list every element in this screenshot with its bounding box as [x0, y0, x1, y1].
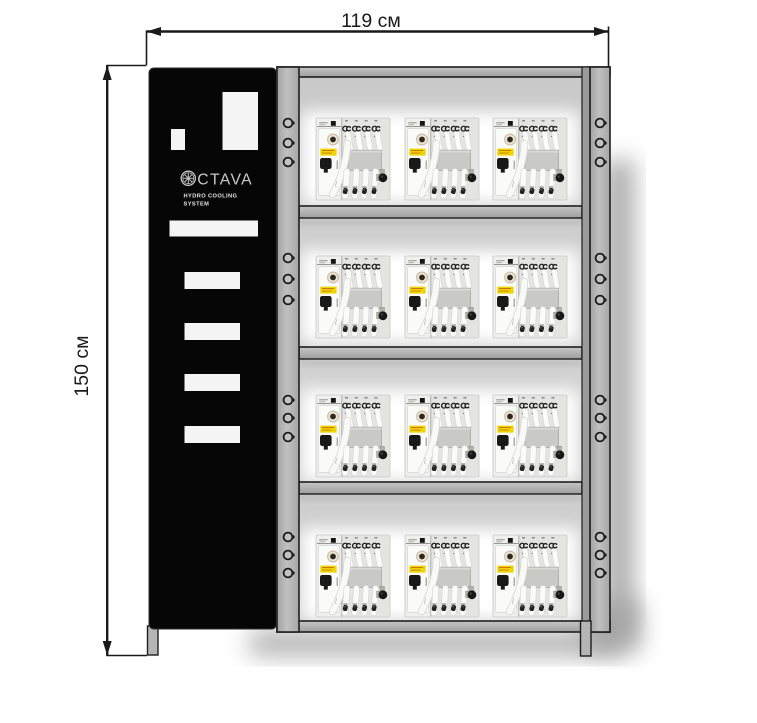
svg-text:119 см: 119 см — [341, 10, 401, 32]
svg-text:SYSTEM: SYSTEM — [184, 201, 210, 207]
svg-text:150 см: 150 см — [71, 335, 93, 396]
svg-text:HYDRO COOLING: HYDRO COOLING — [184, 194, 238, 200]
svg-text:CTAVA: CTAVA — [197, 171, 253, 188]
